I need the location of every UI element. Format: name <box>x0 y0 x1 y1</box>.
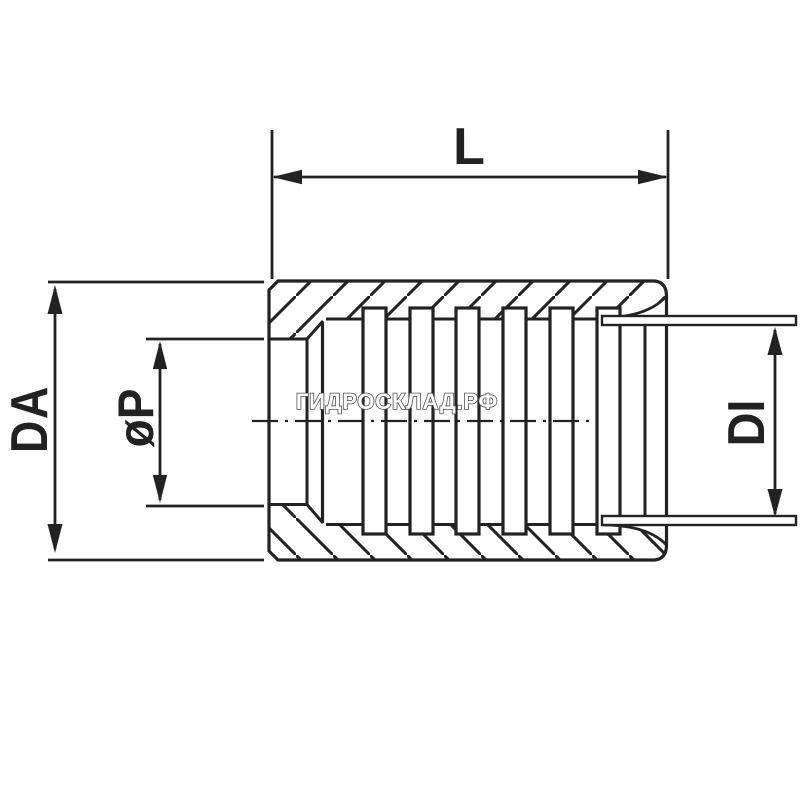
svg-text:ГИДРОСКЛАД.РФ: ГИДРОСКЛАД.РФ <box>296 389 498 414</box>
svg-text:L: L <box>453 118 485 176</box>
svg-text:øP: øP <box>109 389 164 448</box>
svg-text:DA: DA <box>1 385 59 453</box>
svg-text:DI: DI <box>718 400 776 447</box>
